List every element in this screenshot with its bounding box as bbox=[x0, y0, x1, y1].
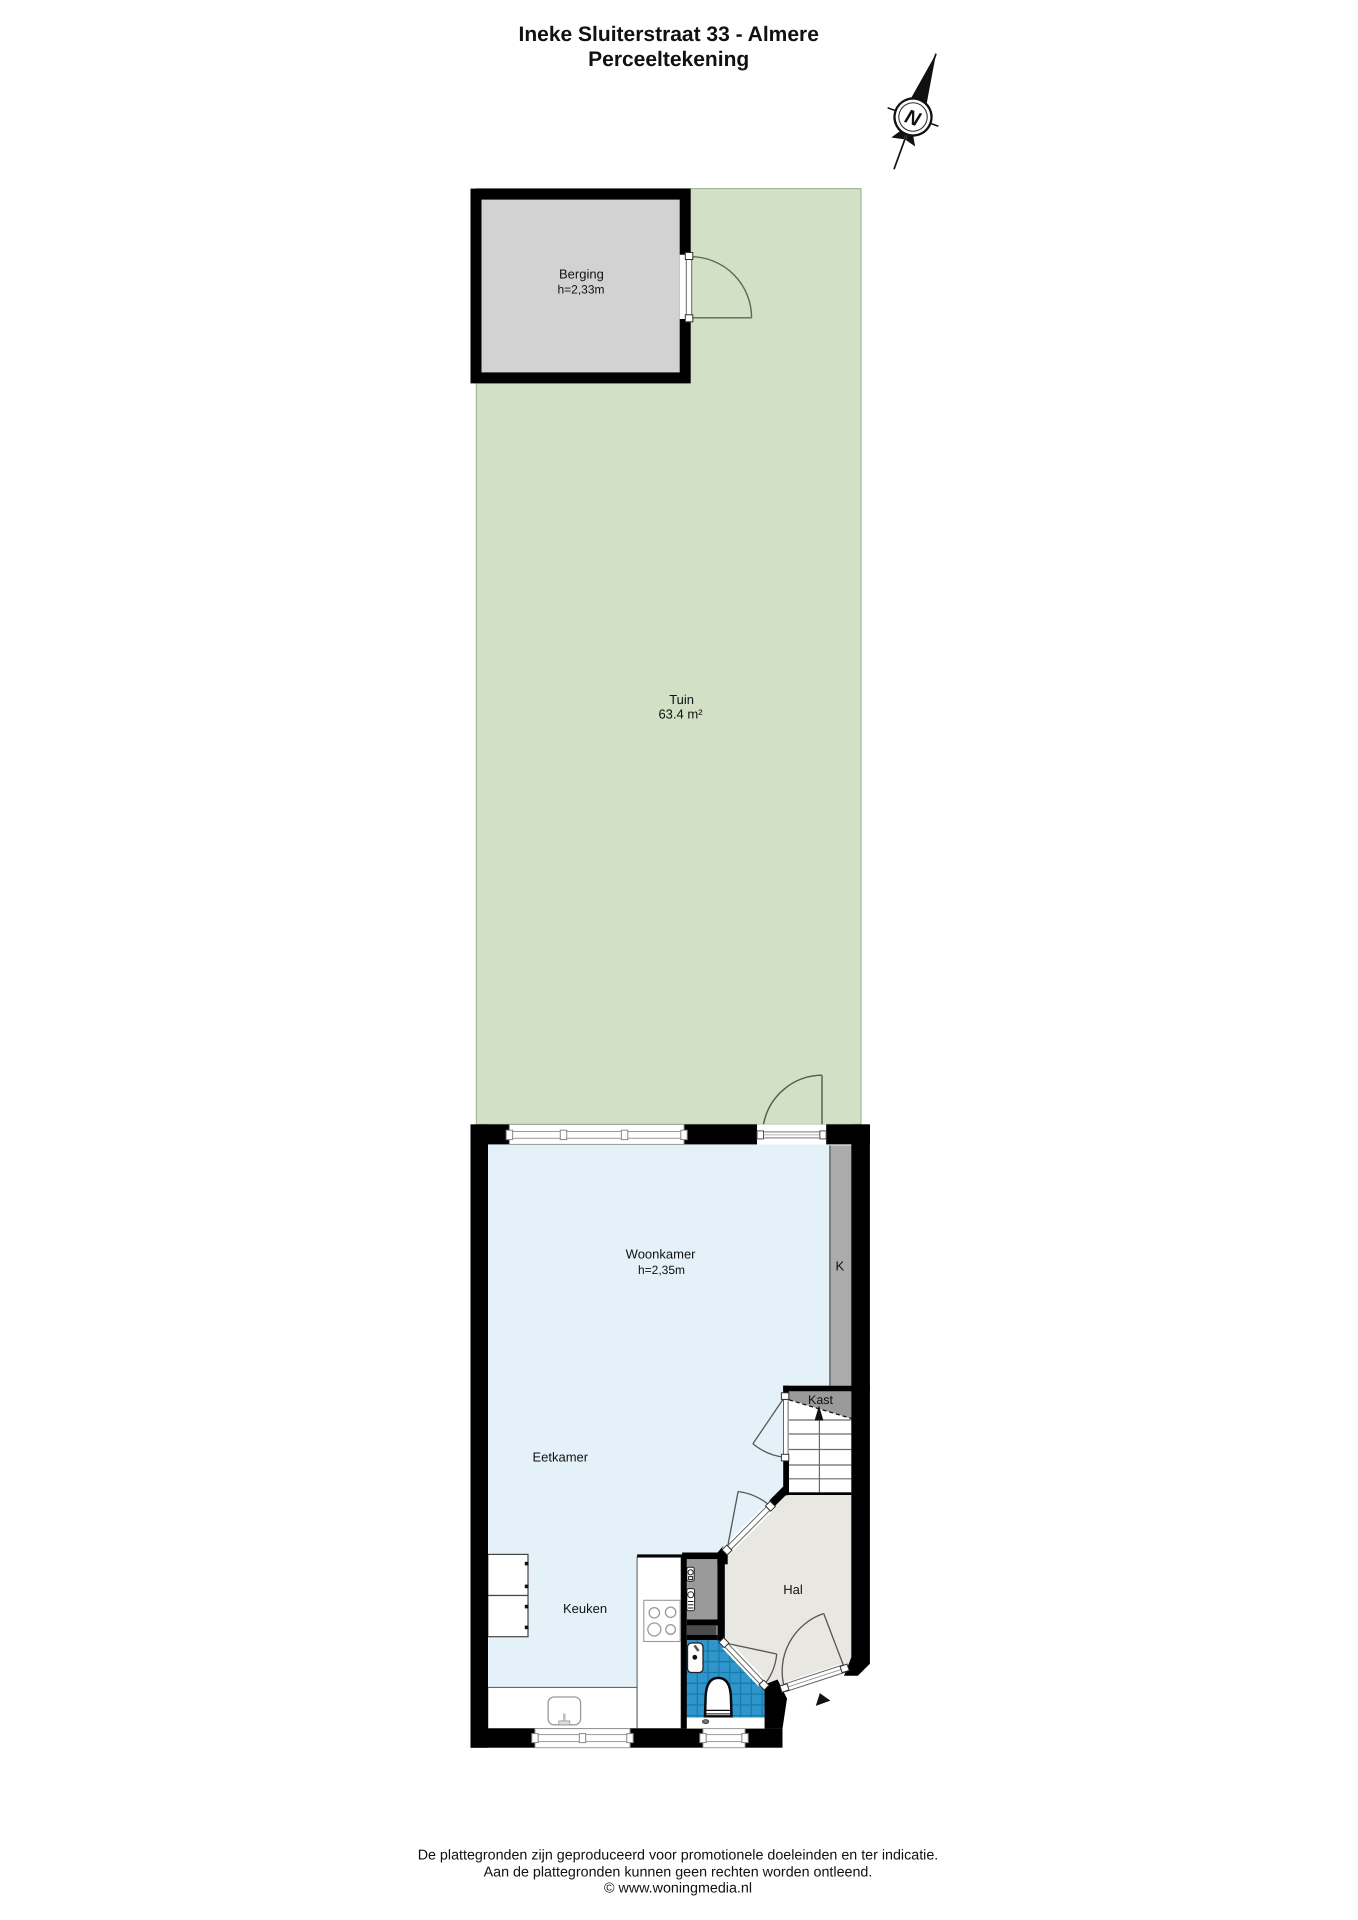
svg-text:K: K bbox=[835, 1259, 844, 1274]
svg-text:© www.woningmedia.nl: © www.woningmedia.nl bbox=[604, 1881, 752, 1897]
svg-text:Berging: Berging bbox=[559, 267, 604, 282]
svg-text:63.4 m²: 63.4 m² bbox=[658, 707, 703, 722]
svg-text:Kast: Kast bbox=[808, 1393, 834, 1407]
svg-text:Ineke Sluiterstraat 33 - Almer: Ineke Sluiterstraat 33 - Almere bbox=[519, 23, 819, 46]
svg-text:Keuken: Keuken bbox=[563, 1601, 607, 1616]
svg-text:h=2,35m: h=2,35m bbox=[638, 1263, 685, 1277]
svg-text:Aan de plattegronden kunnen ge: Aan de plattegronden kunnen geen rechten… bbox=[484, 1865, 873, 1881]
svg-text:Eetkamer: Eetkamer bbox=[532, 1450, 588, 1465]
svg-text:Woonkamer: Woonkamer bbox=[626, 1247, 697, 1262]
svg-text:Hal: Hal bbox=[783, 1582, 803, 1597]
svg-text:h=2,33m: h=2,33m bbox=[557, 283, 604, 297]
svg-text:Perceeltekening: Perceeltekening bbox=[588, 48, 749, 71]
svg-text:Tuin: Tuin bbox=[669, 692, 694, 707]
svg-text:De plattegronden zijn geproduc: De plattegronden zijn geproduceerd voor … bbox=[418, 1848, 939, 1864]
